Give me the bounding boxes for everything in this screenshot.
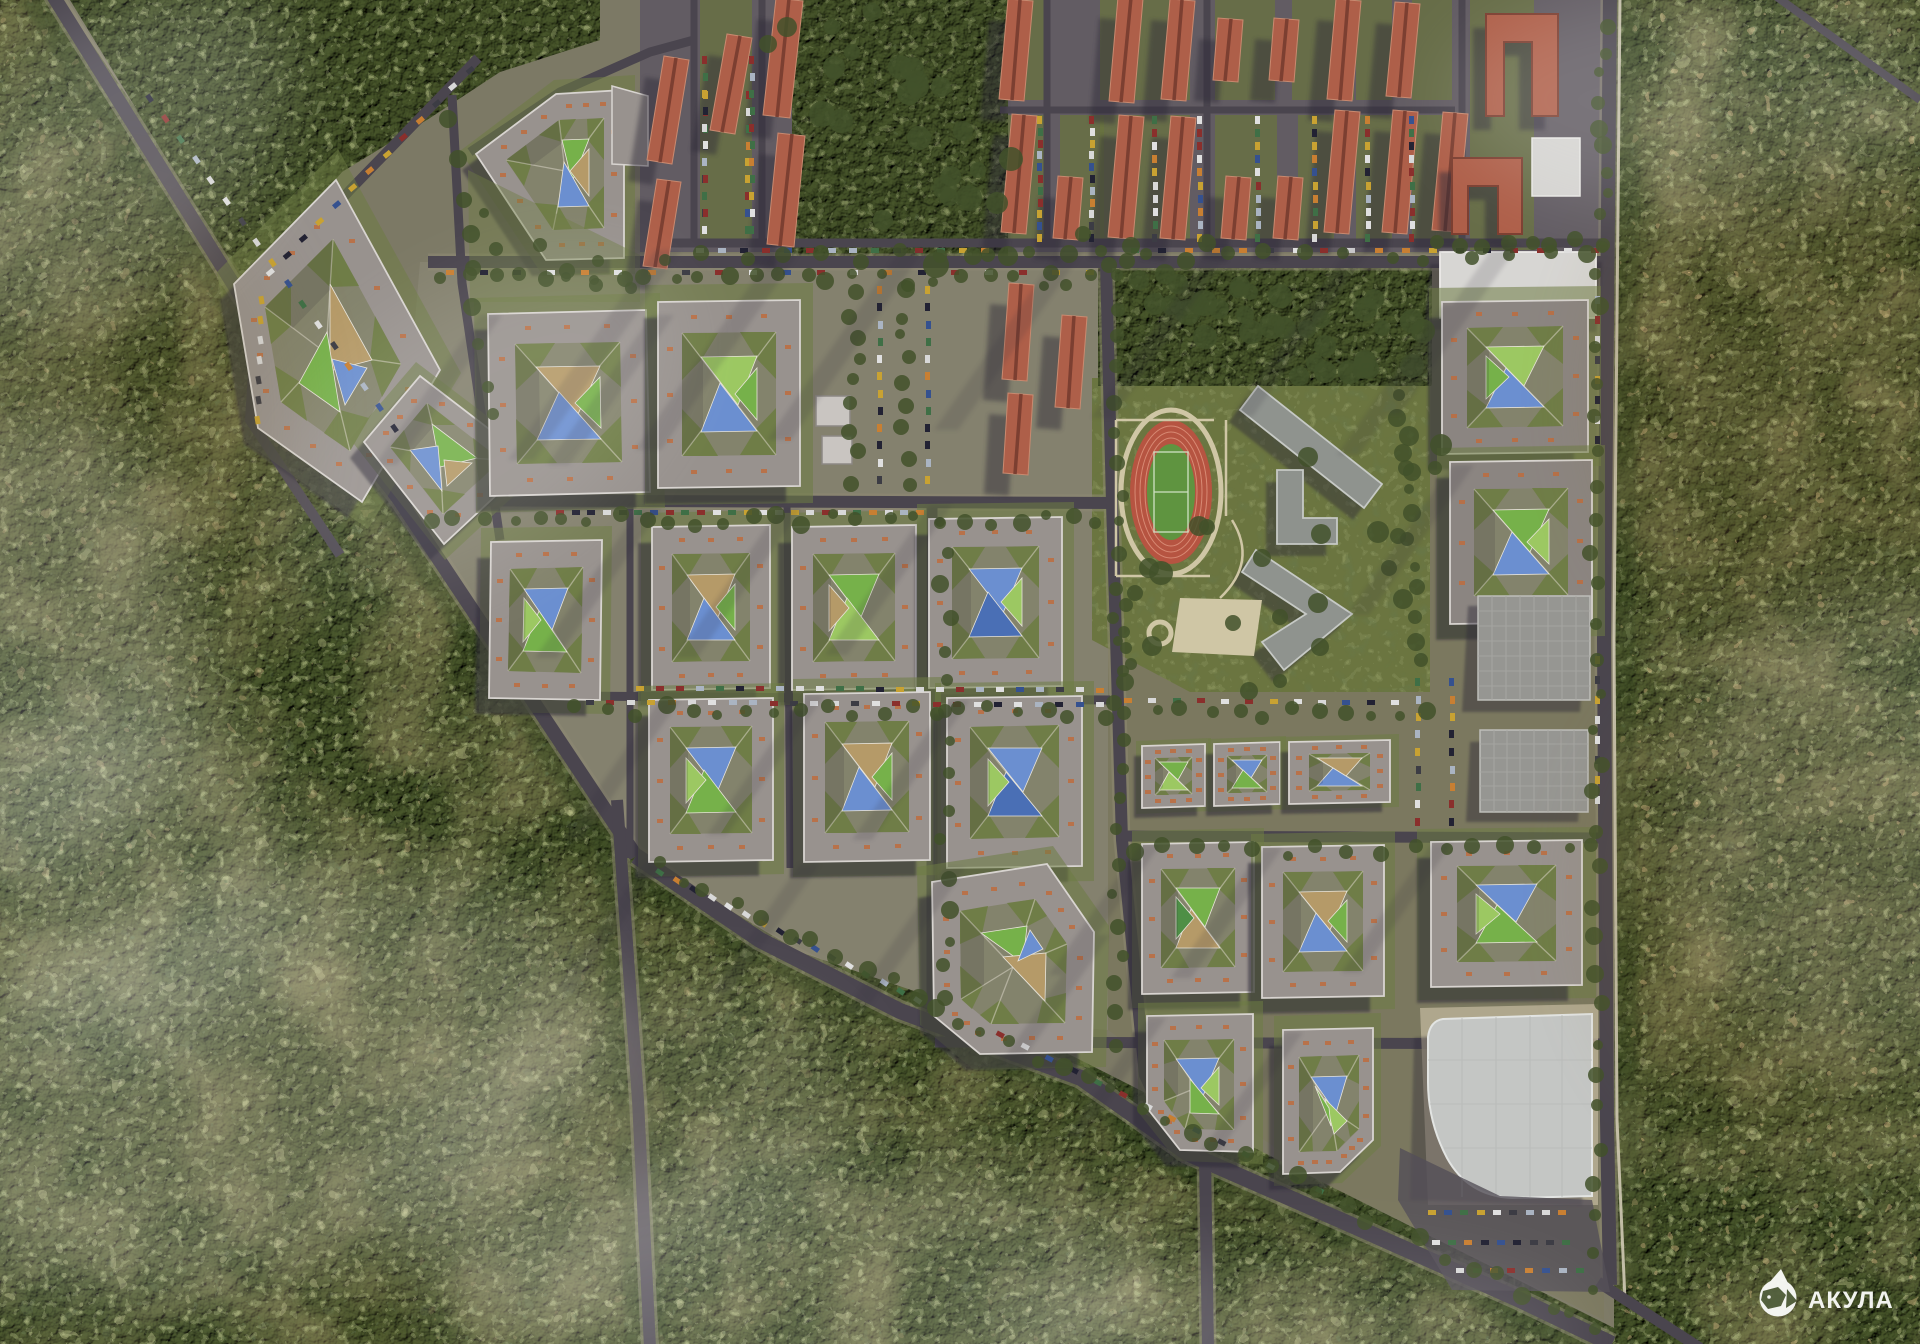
- svg-text:АКУЛА: АКУЛА: [1808, 1287, 1894, 1314]
